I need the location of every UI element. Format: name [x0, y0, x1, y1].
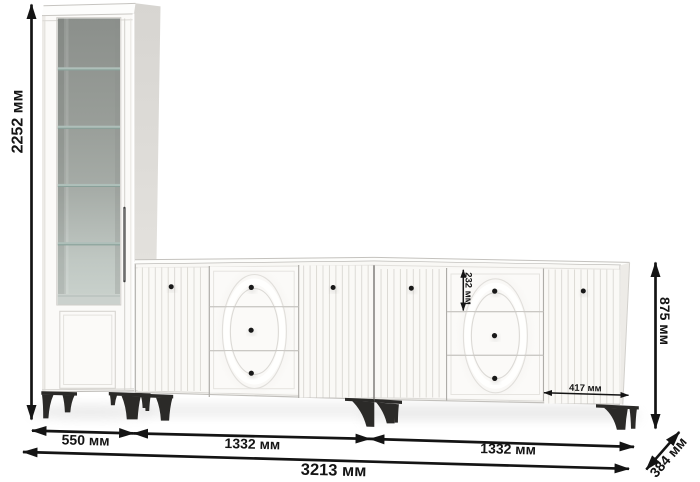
svg-text:3213 мм: 3213 мм	[301, 461, 367, 481]
svg-text:384 мм: 384 мм	[646, 434, 690, 481]
svg-text:232 мм: 232 мм	[462, 272, 473, 305]
svg-text:1332 мм: 1332 мм	[480, 440, 536, 457]
svg-text:2252 мм: 2252 мм	[9, 90, 26, 154]
svg-text:417 мм: 417 мм	[569, 383, 602, 395]
svg-text:875 мм: 875 мм	[657, 297, 673, 345]
svg-text:1332 мм: 1332 мм	[224, 435, 280, 452]
svg-text:550 мм: 550 мм	[61, 431, 109, 448]
